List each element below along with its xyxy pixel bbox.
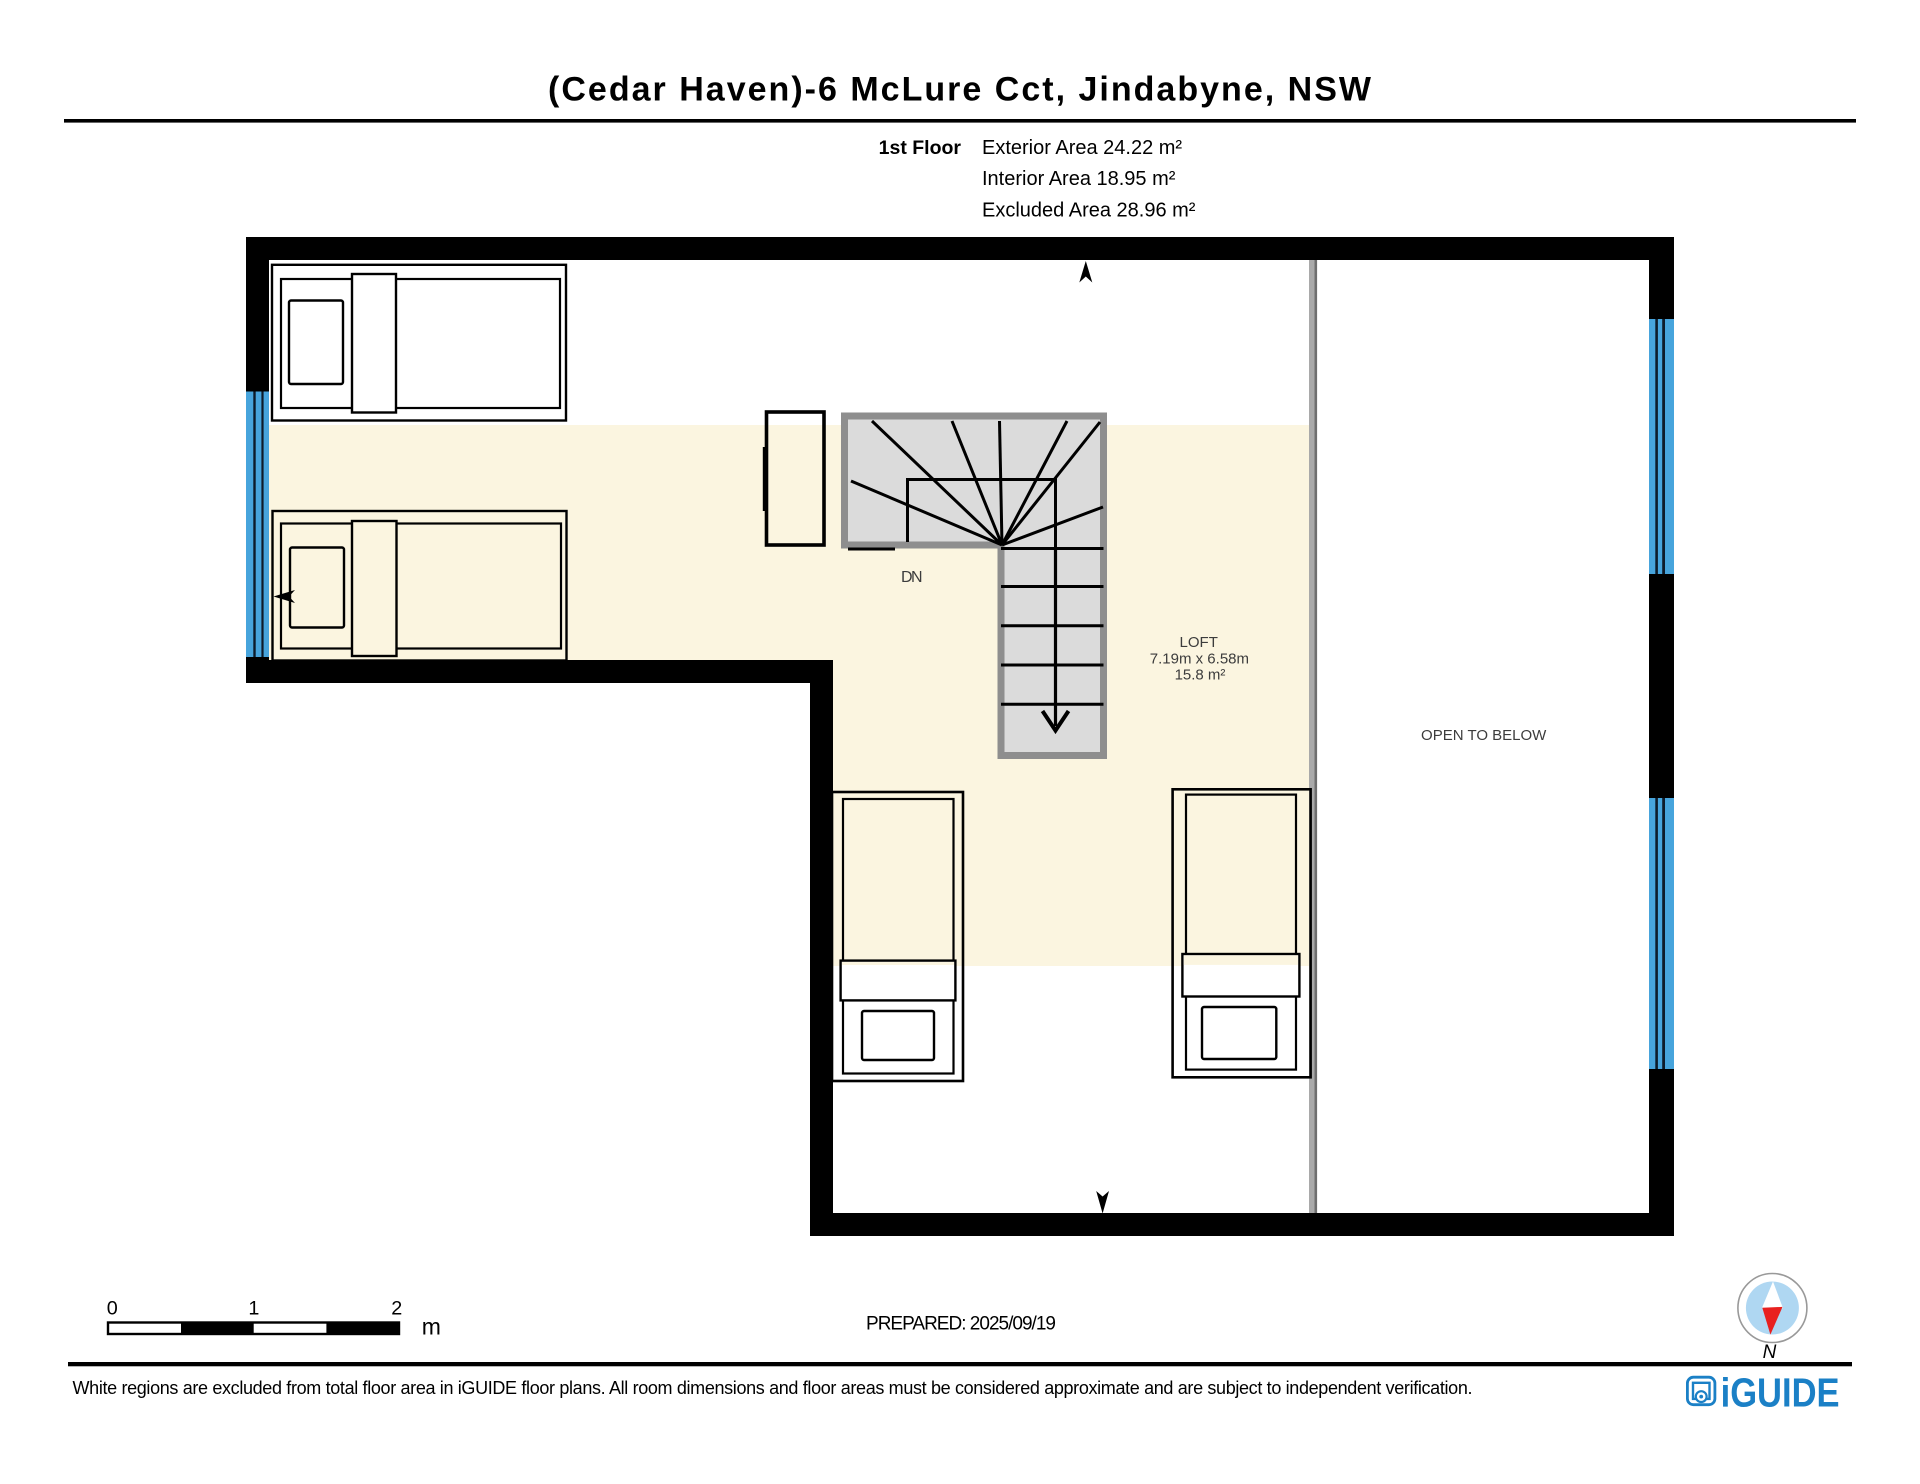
svg-text:1: 1 [248,1298,259,1320]
svg-text:LOFT: LOFT [1180,634,1218,651]
svg-text:1st Floor: 1st Floor [879,137,962,159]
svg-text:White regions are excluded fro: White regions are excluded from total fl… [73,1378,1473,1398]
svg-text:Exterior Area 24.22 m²: Exterior Area 24.22 m² [982,137,1182,159]
svg-text:N: N [1763,1342,1777,1363]
svg-text:DN: DN [901,569,923,586]
svg-text:0: 0 [107,1298,118,1320]
svg-text:OPEN TO BELOW: OPEN TO BELOW [1421,727,1547,744]
svg-text:Interior Area 18.95 m²: Interior Area 18.95 m² [982,168,1176,190]
svg-text:iGUIDE: iGUIDE [1721,1370,1840,1416]
svg-text:PREPARED: 2025/09/19: PREPARED: 2025/09/19 [866,1314,1056,1335]
svg-text:(Cedar Haven)-6 McLure Cct, Ji: (Cedar Haven)-6 McLure Cct, Jindabyne, N… [548,71,1372,109]
svg-text:m: m [422,1314,441,1340]
svg-text:15.8 m²: 15.8 m² [1175,667,1226,684]
svg-text:2: 2 [391,1298,402,1320]
svg-text:Excluded Area 28.96 m²: Excluded Area 28.96 m² [982,200,1196,222]
svg-text:7.19m x 6.58m: 7.19m x 6.58m [1150,651,1249,668]
